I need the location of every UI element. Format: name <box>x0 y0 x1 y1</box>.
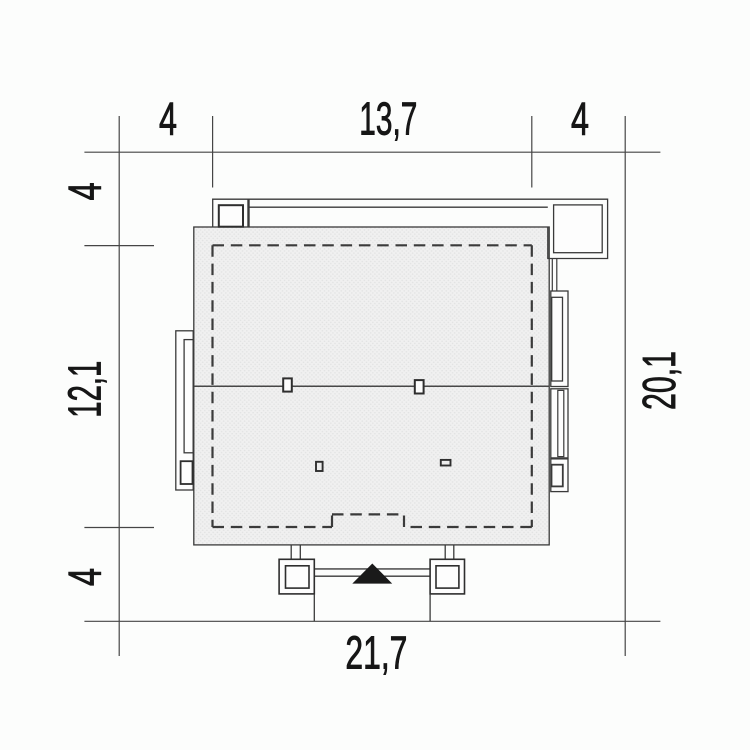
svg-text:12,1: 12,1 <box>59 361 111 418</box>
svg-text:13,7: 13,7 <box>359 93 417 145</box>
svg-text:20,1: 20,1 <box>633 351 685 410</box>
svg-text:21,7: 21,7 <box>345 627 407 679</box>
svg-text:4: 4 <box>159 93 177 145</box>
svg-text:4: 4 <box>571 93 589 145</box>
svg-text:4: 4 <box>59 568 111 586</box>
svg-text:4: 4 <box>59 182 111 200</box>
